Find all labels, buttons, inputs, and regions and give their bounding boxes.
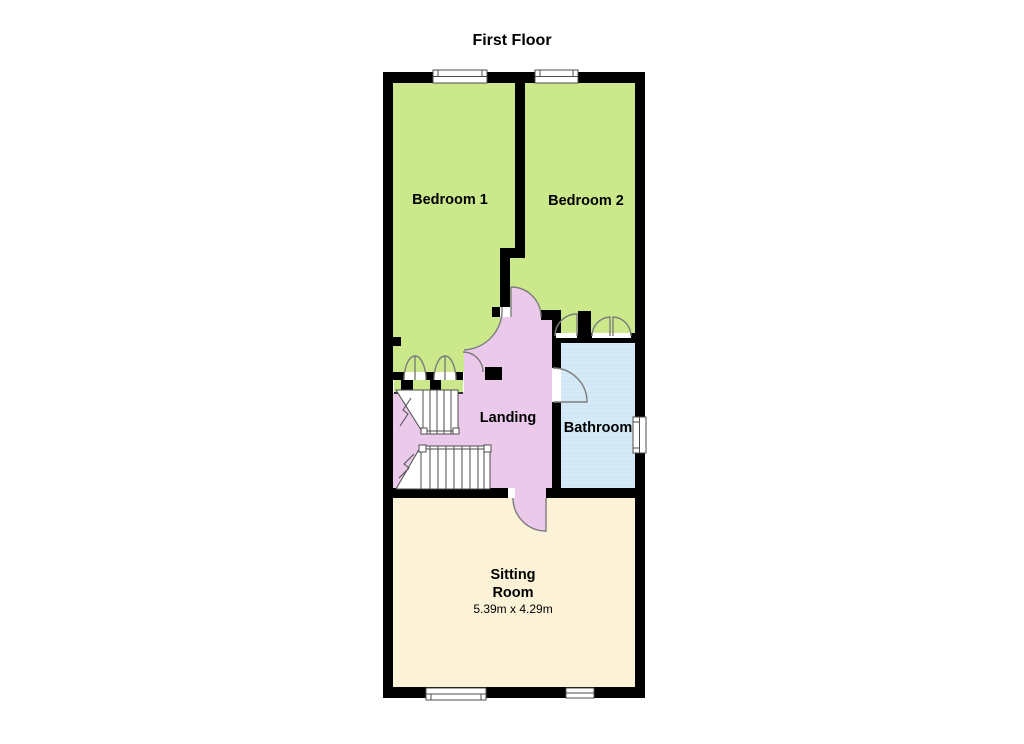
wall-chimney-stub	[383, 337, 401, 346]
sitting-room-label-line1: Sitting	[490, 567, 535, 583]
wall-bedroom-divider-upper	[515, 72, 525, 252]
window-bottom-left	[426, 688, 486, 700]
bathroom-floor	[561, 343, 635, 488]
wall-outer-left	[383, 72, 393, 698]
window-top-left	[433, 70, 487, 83]
stair-upper-newel-right	[453, 428, 459, 434]
wall-outer-right	[635, 72, 645, 698]
stair-lower-newel-right	[484, 445, 491, 452]
bathroom-label: Bathroom	[564, 420, 632, 436]
bedroom2-floor-upper	[525, 83, 635, 253]
bedroom2-label: Bedroom 2	[548, 193, 624, 209]
bedroom1-floor	[393, 83, 515, 372]
window-top-right	[535, 70, 578, 83]
wall-bathroom-left	[552, 343, 561, 488]
window-right-bathroom	[633, 417, 646, 453]
stair-upper-newel-left	[421, 428, 427, 434]
wall-bedroom1-door-stub	[485, 367, 502, 380]
wall-wardrobe2-divider	[578, 311, 591, 343]
wall-outer-top	[383, 72, 645, 83]
opening-sitting-door-gap	[508, 488, 515, 498]
bedroom1-label: Bedroom 1	[412, 192, 488, 208]
floorplan-drawing: First Floor Bedroom 1 Bedroom 2 Landing …	[0, 0, 1024, 744]
stair-upper-flight	[423, 390, 458, 434]
floorplan-page: First Floor Bedroom 1 Bedroom 2 Landing …	[0, 0, 1024, 744]
opening-sitting-door	[515, 488, 546, 498]
wall-outer-bottom	[383, 687, 645, 698]
stair-lower-flight	[421, 446, 490, 489]
stair-lower-newel-left	[419, 445, 426, 452]
window-bottom-right	[566, 688, 594, 698]
page-title: First Floor	[472, 32, 551, 49]
wall-notch	[492, 307, 500, 317]
opening-wardrobe2-a	[556, 333, 577, 338]
sitting-room-label-line2: Room	[492, 585, 533, 601]
opening-bathroom-door	[552, 368, 561, 402]
opening-wardrobe2-b	[592, 333, 631, 338]
sitting-room-dimensions: 5.39m x 4.29m	[473, 602, 552, 616]
landing-label: Landing	[480, 410, 536, 426]
